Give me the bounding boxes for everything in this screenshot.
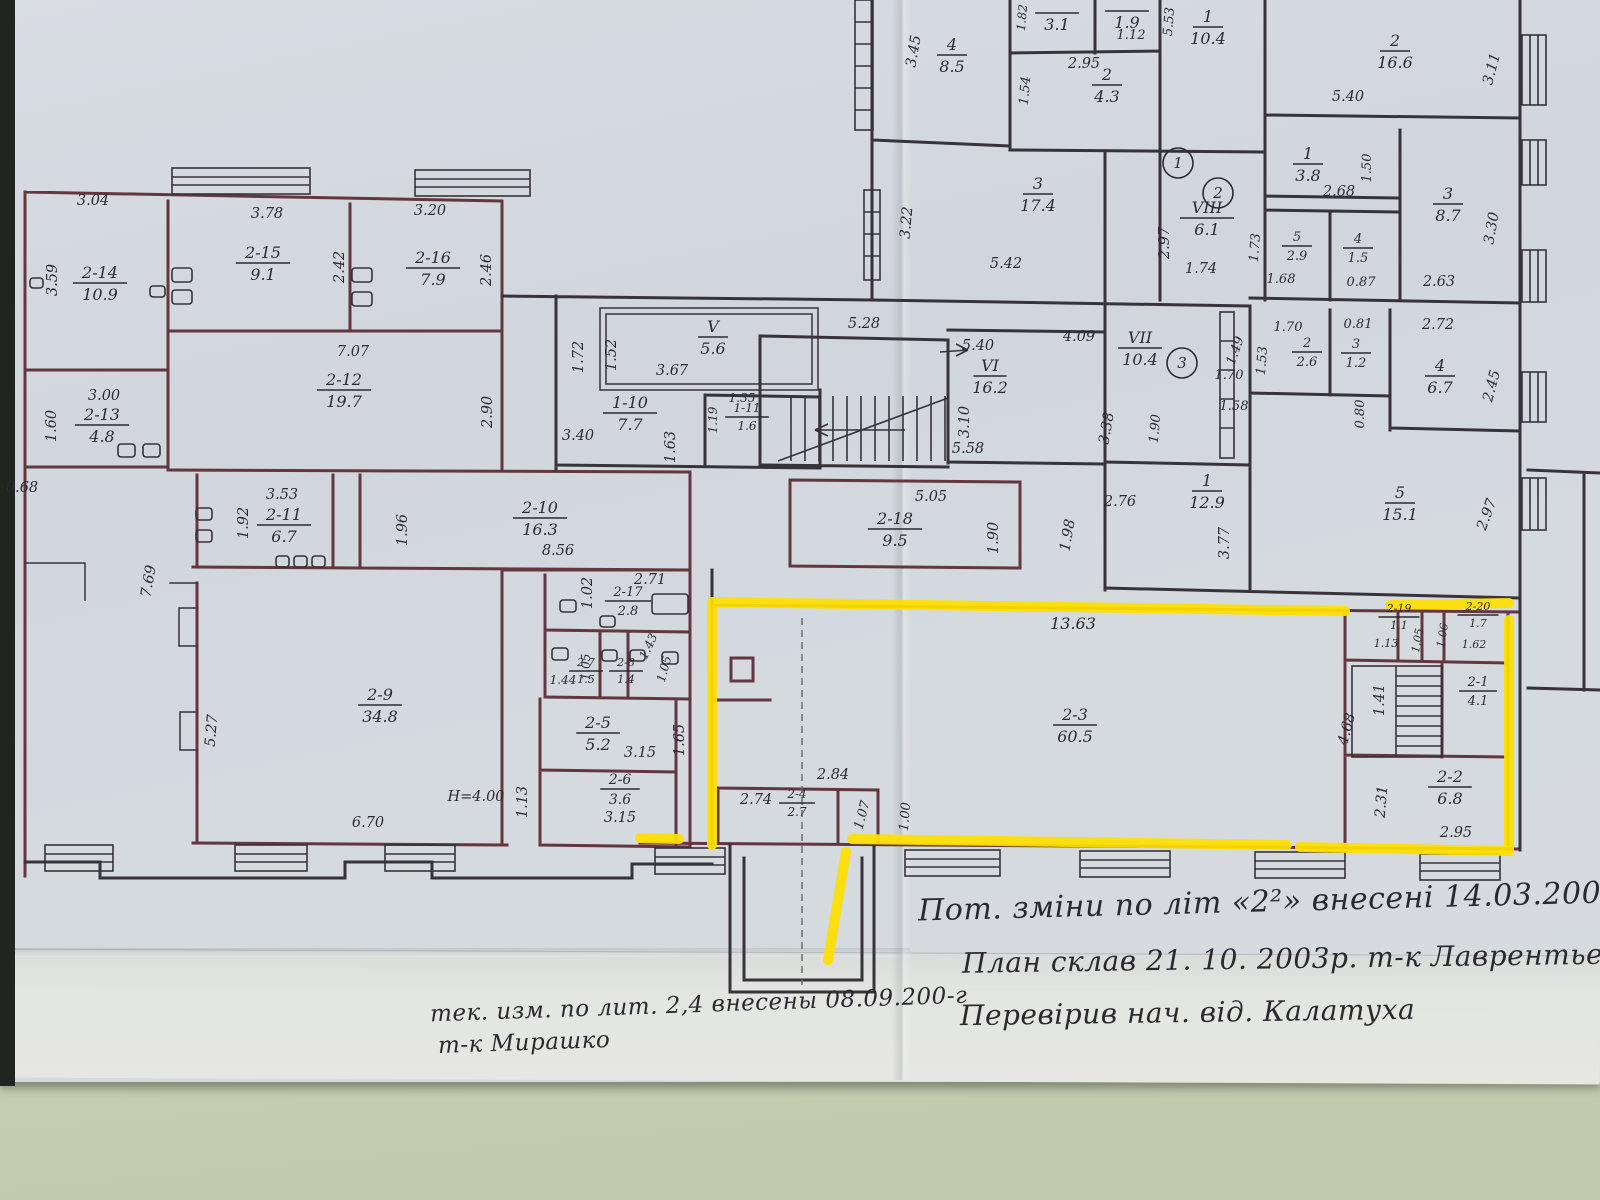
svg-text:2: 2 — [1302, 336, 1311, 351]
dimension-label: 0.68 — [6, 480, 38, 496]
svg-text:1.4: 1.4 — [617, 673, 635, 686]
svg-text:16.6: 16.6 — [1377, 53, 1413, 72]
svg-text:3.8: 3.8 — [1295, 166, 1320, 185]
svg-text:16.3: 16.3 — [522, 520, 558, 539]
svg-text:2-20: 2-20 — [1465, 600, 1491, 613]
dimension-label: 5.40 — [1332, 89, 1364, 105]
wall-left-steps — [25, 563, 197, 750]
dimension-label: 3.67 — [656, 363, 689, 379]
dimension-label: 1.49 — [1224, 335, 1248, 367]
room-label: 2-26.8 — [1428, 767, 1472, 808]
svg-text:2.6: 2.6 — [1296, 355, 1318, 370]
svg-text:6.1: 6.1 — [1194, 220, 1219, 239]
dimension-label: 1.05 — [579, 654, 593, 681]
svg-text:2-14: 2-14 — [81, 263, 118, 282]
dimension-label: 5.53 — [1161, 7, 1178, 37]
dimension-label: 2.42 — [332, 251, 348, 284]
svg-text:8.7: 8.7 — [1435, 206, 1461, 225]
svg-text:2-1: 2-1 — [1467, 675, 1489, 690]
dimension-label: 1.44 — [550, 673, 577, 687]
svg-text:1.5: 1.5 — [1348, 251, 1369, 266]
room-label: V5.6 — [698, 317, 728, 358]
room-label: 3.1 — [1035, 13, 1079, 34]
dimension-label: 2.90 — [480, 396, 496, 429]
dimension-label: 1.58 — [1220, 399, 1249, 414]
svg-text:5.2: 5.2 — [585, 735, 610, 754]
room-label: 41.5 — [1343, 232, 1373, 266]
dimension-label: 0.81 — [1344, 317, 1373, 332]
svg-text:5.6: 5.6 — [700, 339, 725, 358]
dimension-label: 1.72 — [571, 341, 587, 373]
dimension-label: 2.71 — [633, 572, 666, 588]
dimension-label: 2.46 — [479, 254, 495, 287]
dimension-label: 3.38 — [1096, 411, 1117, 446]
svg-text:1.2: 1.2 — [1346, 356, 1367, 371]
dimension-label: 7.07 — [337, 344, 370, 360]
room-label: 2-116.7 — [257, 505, 311, 546]
svg-text:1: 1 — [1303, 144, 1313, 163]
svg-text:12.9: 12.9 — [1189, 493, 1225, 512]
dimension-label: 2.84 — [816, 767, 849, 783]
svg-text:2-11: 2-11 — [265, 505, 302, 524]
svg-text:1: 1 — [1173, 154, 1183, 172]
svg-text:2-19: 2-19 — [1386, 602, 1412, 615]
svg-text:4.8: 4.8 — [88, 427, 114, 446]
svg-text:3.1: 3.1 — [1044, 15, 1069, 34]
stair-treads — [778, 344, 968, 461]
svg-text:4.1: 4.1 — [1467, 694, 1489, 709]
dimension-label: 5.28 — [848, 316, 880, 332]
handwritten-note: Перевірив нач. від. Калатуха — [960, 993, 1416, 1032]
dimension-label: 3.30 — [1481, 211, 1502, 246]
room-label: 2-934.8 — [358, 685, 402, 726]
svg-text:5: 5 — [1395, 483, 1405, 502]
svg-text:10.4: 10.4 — [1122, 350, 1158, 369]
svg-text:6.8: 6.8 — [1437, 789, 1462, 808]
svg-text:15.1: 15.1 — [1382, 505, 1418, 524]
svg-text:4: 4 — [946, 35, 957, 54]
floor-plan-photo: 2-1410.92-159.12-167.92-1219.72-134.82-1… — [0, 0, 1600, 1200]
room-label: VII10.4 — [1118, 328, 1162, 369]
dimension-label: 1.90 — [986, 522, 1002, 554]
dimension-label: 1.13 — [1374, 637, 1399, 650]
room-label: 216.6 — [1377, 31, 1413, 72]
svg-text:2-18: 2-18 — [876, 509, 913, 528]
dimension-label: 1.54 — [1017, 76, 1034, 106]
svg-text:6.7: 6.7 — [1427, 378, 1453, 397]
dimension-label: 2.63 — [1422, 274, 1455, 290]
dimension-label: 1.19 — [706, 406, 720, 433]
dimension-label: 2.97 — [1157, 226, 1173, 260]
radiators — [45, 35, 1546, 880]
room-label: 46.7 — [1425, 356, 1455, 397]
dimension-label: 1.82 — [1014, 4, 1030, 32]
svg-text:2-5: 2-5 — [584, 713, 611, 732]
svg-text:2-15: 2-15 — [244, 243, 281, 262]
dimension-label: 3.59 — [45, 264, 61, 296]
svg-text:1.6: 1.6 — [737, 419, 756, 433]
dimension-label: 2.76 — [1103, 494, 1136, 510]
dimension-label: 1.98 — [1057, 518, 1078, 553]
dimension-label: 3.00 — [88, 388, 120, 404]
svg-text:19.7: 19.7 — [326, 392, 362, 411]
dimension-label: 1.13 — [515, 786, 531, 818]
svg-text:10.9: 10.9 — [82, 285, 118, 304]
dimension-label: 1.00 — [897, 802, 914, 832]
dimension-label: 3.11 — [1480, 51, 1504, 86]
svg-text:2-9: 2-9 — [366, 685, 393, 704]
dimension-label: 1.63 — [663, 431, 679, 463]
room-label: 2-172.8 — [605, 585, 651, 619]
room-label: 2-42.7 — [779, 787, 815, 819]
dimension-label: 2.68 — [1322, 184, 1355, 200]
room-label: 48.5 — [937, 35, 967, 76]
svg-text:7.7: 7.7 — [617, 415, 643, 434]
duct-shaft — [1352, 666, 1442, 757]
dimension-label: 3.10 — [957, 406, 973, 438]
dimension-label: 0.87 — [1347, 275, 1377, 290]
svg-text:1: 1 — [1203, 7, 1213, 26]
dimension-label: 7.69 — [138, 564, 159, 599]
dimension-label: 4.09 — [1062, 329, 1095, 345]
dimension-label: 1.35 — [729, 391, 756, 405]
dimension-label: 3.22 — [898, 206, 917, 240]
dimension-label: 3.15 — [624, 745, 656, 761]
dimension-label: H=4.00 — [446, 789, 504, 805]
dimension-label: 1.53 — [1254, 346, 1271, 376]
svg-text:3: 3 — [1177, 354, 1187, 372]
dimension-label: 1.06 — [1434, 622, 1451, 648]
svg-text:3: 3 — [1352, 337, 1360, 352]
dimension-label: 2.97 — [1474, 496, 1501, 533]
room-label: 1-111.6 — [725, 401, 769, 433]
dimension-label: 2.45 — [1480, 368, 1504, 404]
axis-mark: 3 — [1167, 348, 1197, 378]
room-label: 2-14.1 — [1459, 675, 1497, 709]
svg-text:4: 4 — [1353, 232, 1362, 247]
dimension-label: 2.95 — [1439, 825, 1472, 841]
dimension-label: 3.53 — [266, 487, 298, 503]
svg-text:2: 2 — [1212, 184, 1223, 202]
svg-text:2.7: 2.7 — [786, 805, 806, 819]
svg-text:2-4: 2-4 — [786, 787, 806, 801]
svg-text:3: 3 — [1443, 184, 1453, 203]
svg-text:2-16: 2-16 — [414, 248, 451, 267]
dimension-label: 1.62 — [1462, 638, 1487, 651]
dimension-label: 3.20 — [414, 203, 446, 219]
dimension-label: 8.56 — [542, 543, 574, 559]
dimension-label: 5.40 — [962, 338, 994, 354]
plan-labels: 2-1410.92-159.12-167.92-1219.72-134.82-1… — [6, 4, 1504, 841]
room-label: 2-55.2 — [576, 713, 620, 754]
dimension-label: 3.40 — [562, 428, 594, 444]
dimension-label: 3.77 — [1217, 526, 1233, 559]
room-label: VI16.2 — [972, 356, 1008, 397]
svg-text:2-3: 2-3 — [1061, 705, 1088, 724]
dimension-label: 1.92 — [236, 507, 252, 539]
dimension-label: 2.74 — [739, 792, 772, 808]
svg-text:2.9: 2.9 — [1286, 249, 1308, 264]
dimension-label: 3.45 — [903, 34, 924, 69]
svg-text:2: 2 — [1389, 31, 1400, 50]
svg-text:1.1: 1.1 — [1390, 619, 1408, 632]
svg-text:2-13: 2-13 — [83, 405, 120, 424]
wall-outer-bottom — [25, 862, 712, 878]
svg-text:1: 1 — [1202, 471, 1212, 490]
svg-text:2-2: 2-2 — [1436, 767, 1463, 786]
dimension-label: 4.68 — [1335, 711, 1359, 747]
svg-text:9.5: 9.5 — [882, 531, 907, 550]
dimension-label: 3.78 — [251, 206, 283, 222]
dimension-label: 3.15 — [604, 810, 636, 826]
svg-text:2-6: 2-6 — [608, 772, 632, 788]
dimension-label: 5.58 — [952, 441, 984, 457]
dimension-label: 1.73 — [1247, 233, 1264, 263]
room-label: 2-134.8 — [75, 405, 129, 446]
room-label: 2-159.1 — [236, 243, 290, 284]
svg-text:17.4: 17.4 — [1020, 196, 1056, 215]
dimension-label: 6.70 — [352, 815, 384, 831]
svg-text:10.4: 10.4 — [1190, 29, 1226, 48]
svg-text:60.5: 60.5 — [1057, 727, 1093, 746]
room-label: 52.9 — [1282, 230, 1312, 264]
dimension-label: 1.02 — [580, 577, 596, 609]
room-label: 2-360.5 — [1053, 705, 1097, 746]
dimension-label: 1.50 — [1360, 154, 1375, 183]
room-label: 1-107.7 — [603, 393, 657, 434]
dimension-label: 1.74 — [1185, 261, 1217, 277]
dimension-label: 1.05 — [654, 654, 674, 683]
svg-text:1-10: 1-10 — [612, 393, 648, 412]
dimension-label: 5.42 — [990, 256, 1022, 272]
room-label: 31.2 — [1341, 337, 1371, 371]
svg-text:2: 2 — [1101, 65, 1112, 84]
svg-text:4: 4 — [1434, 356, 1445, 375]
svg-text:16.2: 16.2 — [972, 378, 1008, 397]
dimension-label: 1.52 — [604, 339, 620, 371]
svg-text:2-10: 2-10 — [521, 498, 558, 517]
svg-text:VII: VII — [1128, 328, 1153, 347]
room-label: 13.8 — [1293, 144, 1323, 185]
dimension-label: 1.68 — [1267, 272, 1296, 287]
svg-text:4.3: 4.3 — [1093, 87, 1119, 106]
dimension-label: 13.63 — [1050, 614, 1096, 633]
svg-text:6.7: 6.7 — [271, 527, 297, 546]
dimension-label: 2.95 — [1067, 56, 1100, 72]
room-label: 2-1219.7 — [317, 370, 371, 411]
dimension-label: 1.90 — [1147, 414, 1164, 444]
dimension-label: 1.12 — [1117, 28, 1146, 43]
dimension-label: 1.96 — [395, 514, 411, 546]
dimension-label: 1.07 — [852, 798, 874, 831]
svg-text:3.6: 3.6 — [609, 792, 631, 808]
dimension-label: 1.43 — [636, 631, 660, 661]
svg-text:34.8: 34.8 — [362, 707, 398, 726]
dimension-label: 0.80 — [1353, 400, 1368, 429]
dimension-label: 2.31 — [1373, 785, 1392, 820]
svg-text:1.7: 1.7 — [1469, 617, 1487, 630]
room-label: 22.6 — [1292, 336, 1322, 370]
dimension-label: 1.65 — [672, 724, 688, 756]
dimension-label: 1.70 — [1274, 320, 1303, 335]
svg-text:2.8: 2.8 — [617, 604, 639, 619]
room-label: 2-1016.3 — [513, 498, 567, 539]
dimension-label: 3.04 — [77, 193, 109, 209]
dimension-label: 5.05 — [915, 489, 947, 505]
dimension-label: 1.05 — [1409, 627, 1426, 653]
dimension-label: 2.72 — [1421, 317, 1454, 333]
svg-text:V: V — [707, 317, 720, 336]
svg-text:5: 5 — [1293, 230, 1301, 245]
room-label: 2-189.5 — [868, 509, 922, 550]
svg-text:2-12: 2-12 — [325, 370, 362, 389]
room-label: 2-63.6 — [600, 772, 640, 808]
room-label: 515.1 — [1382, 483, 1418, 524]
dimension-label: 1.41 — [1372, 684, 1388, 716]
room-label: 38.7 — [1433, 184, 1463, 225]
room-label: 2-1410.9 — [73, 263, 127, 304]
room-label: 112.9 — [1189, 471, 1225, 512]
dimension-label: 1.70 — [1215, 368, 1244, 383]
dimension-label: 1.60 — [44, 410, 60, 442]
svg-text:7.9: 7.9 — [420, 270, 445, 289]
room-label: 317.4 — [1020, 174, 1056, 215]
svg-text:9.1: 9.1 — [250, 265, 275, 284]
room-label: 110.4 — [1190, 7, 1226, 48]
svg-text:2-8: 2-8 — [616, 656, 635, 669]
svg-text:8.5: 8.5 — [939, 57, 964, 76]
dimension-label: 5.27 — [203, 713, 222, 747]
svg-text:3: 3 — [1033, 174, 1043, 193]
svg-text:VI: VI — [981, 356, 1000, 375]
room-label: 2-167.9 — [406, 248, 460, 289]
